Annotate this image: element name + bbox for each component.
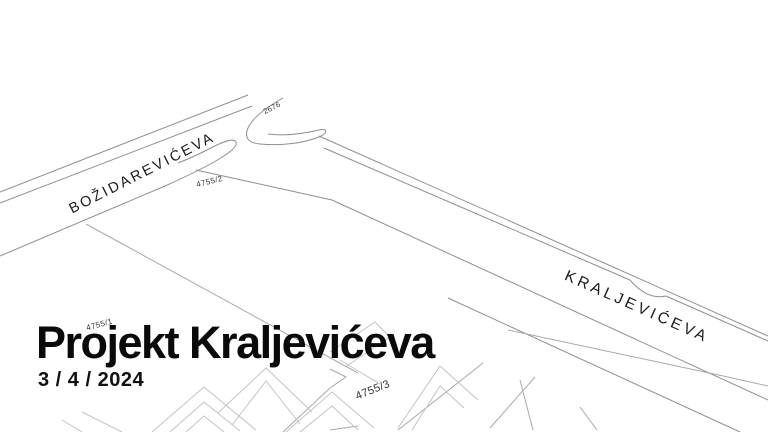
parcel-label-4755-3: 4755/3 — [354, 378, 392, 403]
parcel-2676-boundary — [247, 98, 326, 145]
parcel-label-4755-2: 4755/2 — [195, 174, 223, 189]
street-label-kraljeviceva: KRALJEVIĆEVA — [562, 267, 712, 346]
title-block: Projekt Kraljevićeva — [36, 320, 434, 365]
parcel-label-2676: 2676 — [262, 100, 282, 116]
site-plan-page: 4755/1 BOŽIDAREVIĆEVA KRALJEVIĆEVA 2676 … — [0, 0, 768, 432]
street-label-bozidareviceva: BOŽIDAREVIĆEVA — [66, 129, 217, 217]
street-kraljeviceva-lines — [196, 136, 768, 432]
project-title: Projekt Kraljevićeva — [36, 320, 434, 365]
project-date: 3 / 4 / 2024 — [38, 369, 144, 392]
